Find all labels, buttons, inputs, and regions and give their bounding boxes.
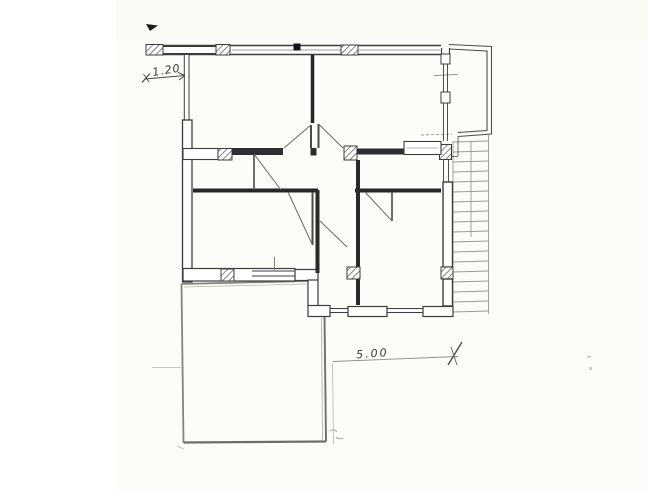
plan-width-label: 5.00 bbox=[356, 346, 389, 361]
wall-tick-mark bbox=[294, 44, 301, 51]
floor-plan-drawing: 5.00 bbox=[0, 0, 648, 492]
masonry-pier bbox=[216, 45, 230, 56]
masonry-pier bbox=[341, 45, 358, 55]
masonry-pier bbox=[347, 267, 360, 279]
masonry-pier bbox=[441, 267, 453, 279]
masonry-pier bbox=[221, 269, 234, 281]
masonry-pier bbox=[146, 45, 163, 56]
masonry-pier bbox=[218, 149, 232, 161]
paper-sheet bbox=[116, 0, 648, 492]
window-lintel bbox=[163, 47, 216, 54]
masonry-pier bbox=[344, 146, 357, 160]
scanned-page: 5.00 bbox=[0, 0, 648, 492]
paper-top-band bbox=[116, 0, 648, 40]
